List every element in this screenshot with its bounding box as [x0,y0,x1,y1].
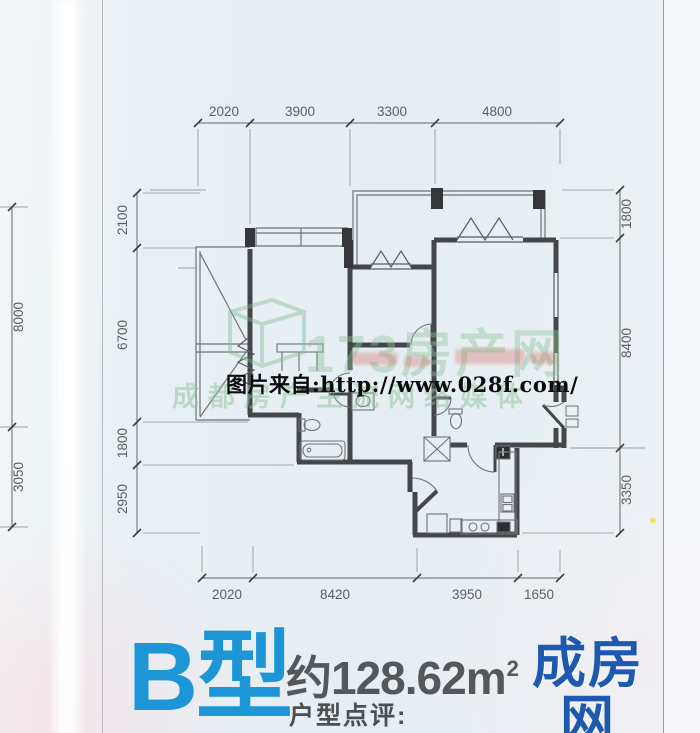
unit-type-label: B型 [128,628,291,725]
watermark-green-logo [230,300,304,366]
dim-top-1: 2020 [209,104,239,119]
dim-left-4: 2950 [115,484,130,514]
dim-top-2: 3900 [285,104,315,119]
floor-plan-drawing: 2020 3900 3300 4800 2020 8420 3950 1650 … [0,0,700,733]
scan-artifact-dot [650,518,656,523]
dim-left-1: 2100 [115,205,130,235]
review-label: 户型点评: [289,696,407,732]
dim-right-1: 1800 [619,199,634,229]
bathtub-icon [300,441,345,460]
dim-bottom-3: 3950 [452,587,482,602]
dim-bottom-2: 8420 [320,587,350,602]
dim-bottom-4: 1650 [524,587,554,602]
shaft-icon [424,437,450,461]
kitchen-counter-icon [461,452,517,534]
scanned-floorplan-page: 2020 3900 3300 4800 2020 8420 3950 1650 … [0,0,700,733]
dim-top-3: 3300 [377,104,407,119]
site-logo-text: 成房网 [512,636,664,733]
dim-top-4: 4800 [482,104,512,119]
watermark-photo-source: 图片来自:http://www.028f.com/ [226,372,578,397]
foyer-cabinet-icon [427,514,462,533]
entry-steps [566,406,578,427]
dim-farleft-1: 8000 [11,302,26,332]
dim-right-2: 8400 [619,328,634,358]
toilet-icon [299,419,320,431]
dim-left-3: 1800 [115,428,130,458]
dim-left-2: 6700 [115,320,130,350]
dim-right-3: 3350 [619,475,634,505]
dim-farleft-2: 3050 [11,462,26,492]
site-logo: 成房网 www.028F.com [512,636,664,733]
dim-bottom-1: 2020 [212,587,242,602]
